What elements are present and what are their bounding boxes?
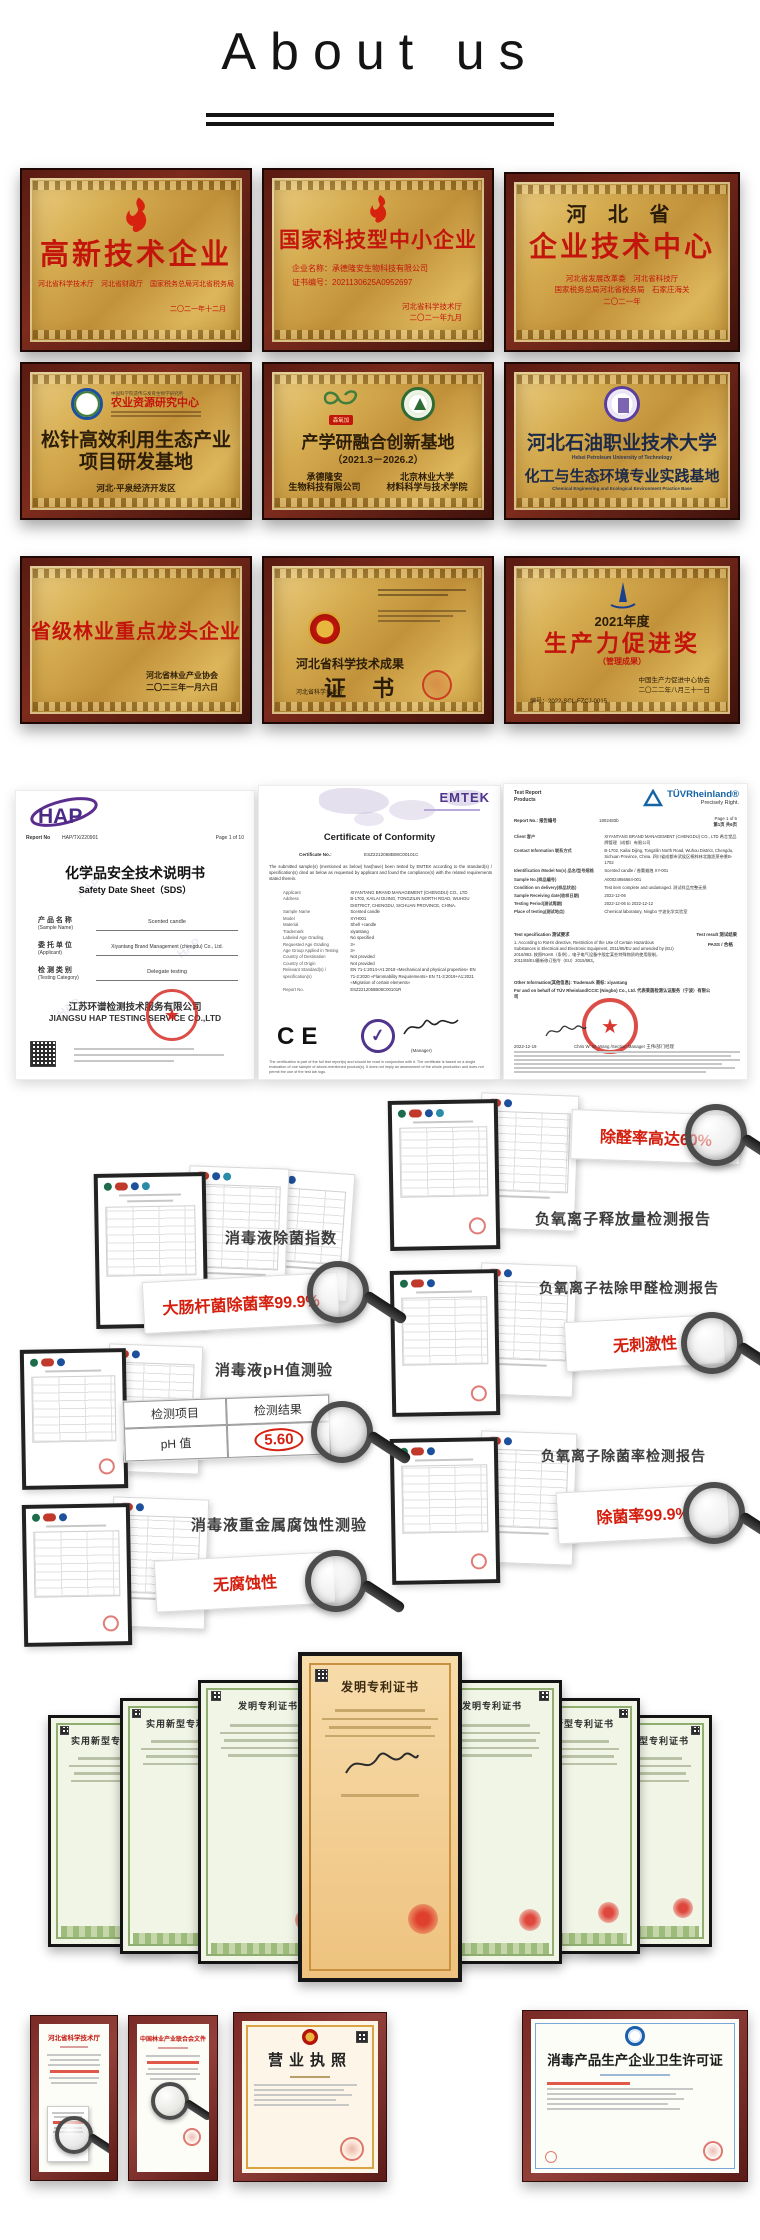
plaque-gold-plate: 河 北 省 企业技术中心 河北省发展改革委 河北省科技厅 国家税务总局河北省税务… [514, 182, 730, 342]
test-report-doc [22, 1503, 132, 1647]
coc-fields: ApplicantXIYANTANG BRAND MANAGEMENT (CHE… [273, 890, 491, 993]
field-label-en: (Sample Name) [38, 925, 96, 931]
cert-title: 河北省科学技术厅 [39, 2032, 109, 2042]
torch-icon [121, 196, 151, 239]
field-label-cn: 检 测 类 别 [38, 965, 96, 975]
table-cell: pH 值 [124, 1425, 228, 1462]
red-seal [519, 1909, 541, 1931]
report-item-ion-sterilization: 负氧离子除菌率检测报告 除菌率99.9% [385, 1430, 753, 1595]
accreditation-logos [32, 1512, 120, 1522]
report-label: 消毒液除菌指数 [225, 1227, 337, 1248]
cert-paper: 中国林业产业联合会文件 [137, 2024, 209, 2172]
plaque-issuer: 河北省科学技术厅 [272, 301, 462, 312]
cert-paper: 营业执照 [242, 2021, 378, 2173]
report-no-value: HAP/TX/220901 [62, 835, 98, 841]
report-item-formaldehyde-removal: 负氧离子祛除甲醛检测报告 无刺激性 [385, 1262, 753, 1427]
coc-title: Certificate of Conformity [259, 832, 500, 843]
emtek-logo: EMTEK [440, 790, 491, 805]
sds-title-cn: 化学品安全技术说明书 [16, 863, 254, 883]
qr-code [356, 2031, 368, 2043]
field-value: Test item complete and undamaged. 测试样品完整… [604, 885, 740, 891]
partner-left-2: 生物科技有限公司 [288, 482, 360, 492]
plaque-issuers-2: 国家税务总局河北省税务局 石家庄海关 [514, 284, 730, 295]
field-key: Place of testing(测试地点) [514, 909, 604, 915]
field-value: Scented candle [96, 915, 238, 931]
field-value: 2022-12-06 [604, 893, 740, 899]
plaque-number: 编号：2022-SCL-FZCJ-0015 [530, 698, 730, 707]
report-no-value: 1802483b [599, 818, 619, 823]
university-emblem [401, 387, 435, 421]
red-seal [103, 1615, 119, 1631]
plaque-gold-plate: 河北石油职业技术大学 Hebei Petroleum University of… [514, 372, 730, 510]
plaque-title-en: Hebei Petroleum University of Technology [514, 455, 730, 463]
plaque-gold-plate: 森氧加 产学研融合创新基地 （2021.3－2026.2） 承德隆安 生物科技有… [272, 372, 484, 510]
plaque-gold-plate: 2021年度 生产力促进奖 （管理成果） 中国生产力促进中心协会 二〇二二年八月… [514, 566, 730, 714]
magnifier-icon [681, 1312, 743, 1374]
report-item-ph-test: 消毒液pH值测验 检测项目 检测结果 pH 值 5.60 [15, 1345, 383, 1500]
health-emblem-icon [625, 2026, 645, 2046]
torch-icon [366, 194, 390, 229]
report-label: 消毒液pH值测验 [215, 1359, 333, 1380]
coc-footer: The certification is part of the full te… [269, 1060, 492, 1075]
plaque-title: 河北石油职业技术大学 [514, 433, 730, 455]
zoom-result-text: 大肠杆菌除菌率99.9% [162, 1287, 320, 1319]
red-seal [99, 1458, 115, 1474]
highlighted-text [147, 2061, 199, 2064]
accreditation-logos [120, 1503, 202, 1514]
about-us-page: About us 高新技术企业 河北省科学技术厅 河北省财政厅 国家税务总局河北… [0, 0, 760, 2240]
doc-type-1: Test Report [514, 790, 541, 796]
red-seal [471, 1553, 487, 1569]
sds-fields: 产 品 名 称 (Sample Name) Scented candle 委 托… [38, 915, 238, 981]
field-key: Report No. [283, 987, 350, 993]
field-value: ESZ2212058B08C00101R [350, 987, 481, 993]
plaque-title-1: 松针高效利用生态产业 [30, 430, 242, 452]
red-seal [469, 1217, 486, 1234]
magnifier-icon [307, 1261, 369, 1323]
plaque-title: 国家科技型中小企业 [272, 229, 484, 253]
field-value: Xiyantang Brand Management (chengdu) Co.… [96, 940, 238, 956]
plaque-date: 二〇二三年一月六日 [30, 682, 218, 694]
plaque-title: 省级林业重点龙头企业 [30, 621, 242, 644]
text-line [111, 411, 201, 413]
plaque-title: 企业技术中心 [514, 231, 730, 263]
red-seal [422, 670, 452, 700]
plaque-gold-plate: 中国科学院遗传与发育生物学研究所 农业资源研究中心 松针高效利用生态产业 项目研… [30, 372, 242, 510]
zoom-result-text: 无腐蚀性 [212, 1568, 277, 1595]
tree-icon [414, 398, 426, 410]
accreditation-logos [104, 1181, 196, 1191]
doc-type-2: Products [514, 797, 536, 803]
zoom-result-text: 除菌率99.9% [596, 1500, 691, 1529]
tuv-fields: Client 客户XIYANTANG BRAND MANAGEMENT (CHE… [514, 834, 740, 917]
plaque-university-practice-base: 河北石油职业技术大学 Hebei Petroleum University of… [504, 362, 740, 520]
patent-certificates-group: 实用新型专利证书 实用新型专利证书 发明专利证书 发明专利证书 [0, 1650, 760, 1985]
tuv-triangle-icon [643, 789, 663, 807]
report-label: 负氧离子释放量检测报告 [535, 1208, 711, 1229]
accreditation-logos [196, 1172, 282, 1183]
field-value: A00024956664-001 [604, 877, 740, 883]
report-no-label: Report No [26, 835, 50, 841]
svg-text:HAP: HAP [38, 805, 82, 828]
plaque-gold-plate: 省级林业重点龙头企业 河北省林业产业协会 二〇二三年一月六日 [30, 566, 242, 714]
red-star-seal [146, 989, 198, 1041]
framed-cert-forestry-association-document: 中国林业产业联合会文件 [128, 2015, 218, 2181]
plaque-title: 生产力促进奖 [514, 630, 730, 656]
manager-signature [401, 1014, 461, 1045]
patent-certificate-invention-center: 发明专利证书 [298, 1652, 462, 1982]
sds-certificate: HAP HAP HAP HAP Report No HAP/TX/220901 … [15, 790, 255, 1080]
framed-cert-hygiene-license: 消毒产品生产企业卫生许可证 [522, 2010, 748, 2182]
coc-intro: The submitted sample(s) (mentioned as be… [269, 864, 492, 882]
plaque-date: 二〇二一年十二月 [30, 305, 226, 316]
plaque-category: （管理成果） [514, 656, 730, 668]
cert-paper: 河北省科学技术厅 [39, 2024, 109, 2172]
magnifier-icon [683, 1482, 745, 1544]
accreditation-logos [488, 1099, 572, 1110]
qr-code [30, 1041, 56, 1067]
field-key: Address [283, 896, 350, 909]
magnifier-icon [151, 2082, 189, 2120]
plaque-province: 河 北 省 [514, 204, 730, 227]
partner-right-1: 北京林业大学 [387, 472, 468, 482]
field-value: B-1702, Kailai Dijing, Tongzilin North R… [604, 848, 740, 866]
red-seal [703, 2141, 723, 2161]
hap-logo: HAP [26, 797, 98, 836]
ce-mark: CE [277, 1023, 324, 1051]
ph-value: 5.60 [254, 1427, 304, 1452]
red-seal [183, 2128, 201, 2146]
org-name: 农业资源研究中心 [111, 397, 201, 410]
report-no-label: Report No.: 报告编号 [514, 818, 557, 824]
plaque-gold-plate: 高新技术企业 河北省科学技术厅 河北省财政厅 国家税务总局河北省税务局 二〇二一… [30, 178, 242, 342]
text-line [74, 1060, 174, 1062]
field-key: Identification /Model No(s) 品名/型号规格 [514, 868, 604, 874]
field-value: B-1702, KAILAI DIJING, TONGZILIN NORTH R… [350, 896, 481, 909]
tuv-footer-lines [514, 1049, 740, 1075]
framed-cert-business-license: 营业执照 [233, 2012, 387, 2182]
official-signature [302, 1747, 458, 1786]
zoom-panel: 检测项目 检测结果 pH 值 5.60 [122, 1393, 332, 1462]
national-emblem-icon [310, 614, 340, 644]
achievement-info-lines [378, 586, 466, 625]
cert-no-label: Certificate No.: [299, 852, 332, 857]
plaque-gold-plate: 国家科技型中小企业 企业名称：承德隆安生物科技有限公司 证书编号：2021130… [272, 178, 484, 342]
cert-title: 中国林业产业联合会文件 [137, 2034, 209, 2043]
red-seal [340, 2137, 364, 2161]
red-seal [673, 1898, 693, 1918]
plaque-year: 2021年度 [514, 615, 730, 630]
page-indicator-cn: 第1页 共6页 [713, 822, 737, 828]
text-line [74, 1054, 224, 1056]
senyangjia-badge: 森氧加 [329, 415, 354, 425]
inspector-signature [544, 1022, 588, 1045]
national-emblem-icon [302, 2029, 318, 2045]
magnifier-icon [685, 1104, 747, 1166]
table-header: 检测项目 [123, 1398, 227, 1429]
field-value: 2022-12-06 to 2022-12-12 [604, 901, 740, 907]
plaque-sub-en: Chemical Engineering and Ecological Envi… [514, 486, 730, 493]
text-line [111, 415, 201, 417]
petroleum-university-emblem [604, 386, 640, 422]
tuv-certificate: Test Report Products TÜVRheinland® Preci… [503, 783, 748, 1080]
title-underline [206, 113, 554, 126]
spec-text: 1. According to RoHS directive, Restrict… [514, 940, 674, 964]
report-label: 负氧离子除菌率检测报告 [541, 1446, 706, 1466]
field-label-en: (Applicant) [38, 950, 96, 956]
emtek-seal: ✓ [359, 1017, 397, 1055]
text-line [74, 1048, 194, 1050]
research-center-emblem [71, 388, 103, 420]
field-key: Condition on delivery(样品状态) [514, 885, 604, 891]
plaque-industry-university-base: 森氧加 产学研融合创新基地 （2021.3－2026.2） 承德隆安 生物科技有… [262, 362, 494, 520]
plaque-sub: 化工与生态环境专业实践基地 [514, 468, 730, 485]
plaque-high-tech-enterprise: 高新技术企业 河北省科学技术厅 河北省财政厅 国家税务总局河北省税务局 二〇二一… [20, 168, 252, 352]
page-indicator: Page 1 of 10 [216, 835, 244, 841]
ph-result-table: 检测项目 检测结果 pH 值 5.60 [123, 1394, 331, 1461]
partner-left-1: 承德隆安 [288, 472, 360, 482]
plaque-date: 二〇二二年八月三十一日 [514, 686, 710, 696]
page-title: About us [0, 22, 760, 82]
tuv-slogan: Precisely Right. [667, 800, 739, 806]
plaque-date: 二〇二一年九月 [272, 312, 462, 323]
report-label: 负氧离子祛除甲醛检测报告 [539, 1278, 719, 1298]
plaque-gold-plate: 河北省科学技术成果 证 书 河北省科学技术厅 [272, 566, 484, 714]
plaque-enterprise-tech-center: 河 北 省 企业技术中心 河北省发展改革委 河北省科技厅 国家税务总局河北省税务… [504, 172, 740, 352]
signature-role: (Manager) [411, 1048, 432, 1053]
report-item-ion-release: 负氧离子释放量检测报告 除醛率高达60% [385, 1090, 753, 1260]
result-label: Test result 测试结果 [696, 932, 737, 938]
magnifier-icon [305, 1550, 367, 1612]
plaque-cert-no: 证书编号：2021130625A0952697 [292, 277, 484, 289]
report-item-heavy-metal-corrosion: 消毒液重金属腐蚀性测验 无腐蚀性 [15, 1498, 383, 1653]
plaque-title: 河北省科学技术成果 [296, 658, 404, 672]
patent-title: 发明专利证书 [302, 1678, 458, 1695]
plaque-science-achievement-cert: 河北省科学技术成果 证 书 河北省科学技术厅 [262, 556, 494, 724]
plaque-issuer: 河北省林业产业协会 [30, 670, 218, 682]
result-value: PASS / 合格 [708, 942, 733, 948]
plaque-date: 二〇二一年 [514, 296, 730, 307]
accreditation-logos [30, 1357, 116, 1366]
plaque-issuer: 河北省科学技术厅 [296, 689, 344, 698]
sail-logo-icon [605, 580, 639, 615]
magnifier-icon [311, 1401, 373, 1463]
plaque-company: 企业名称：承德隆安生物科技有限公司 [292, 263, 484, 275]
other-info: Other Information(其他信息): Trademark 商标: x… [514, 980, 627, 986]
red-seal [408, 1904, 438, 1934]
field-value: XIYANTANG BRAND MANAGEMENT (CHENGDU) CO.… [604, 834, 740, 846]
red-seal-small [545, 2151, 557, 2163]
field-key: Relevant Standard(s) / specification(s) [283, 967, 350, 986]
accreditation-logos [116, 1350, 196, 1361]
cert-no-value: ESZ2212058B08C00101C [364, 852, 418, 857]
field-key: Testing Period(测试周期) [514, 901, 604, 907]
plaque-issuer: 中国生产力促进中心协会 [514, 676, 710, 686]
field-label-cn: 委 托 单 位 [38, 940, 96, 950]
plaque-issuers-1: 河北省发展改革委 河北省科技厅 [514, 273, 730, 284]
sds-title-en: Safety Date Sheet（SDS） [16, 883, 254, 896]
lab-name-en: JIANGSU HAP TESTING SERVICE CO.,LTD [16, 1013, 254, 1023]
accreditation-logos [398, 1108, 488, 1118]
plaque-forestry-leading-enterprise: 省级林业重点龙头企业 河北省林业产业协会 二〇二三年一月六日 [20, 556, 252, 724]
test-report-doc [20, 1348, 128, 1490]
red-seal [471, 1385, 487, 1401]
plaque-period: （2021.3－2026.2） [272, 455, 484, 467]
plaque-pine-needle-rd-base: 中国科学院遗传与发育生物学研究所 农业资源研究中心 松针高效利用生态产业 项目研… [20, 362, 252, 520]
emblem-glyph [618, 398, 629, 413]
plaque-issuers: 河北省科学技术厅 河北省财政厅 国家税务总局河北省税务局 [30, 280, 242, 291]
accreditation-logos [400, 1446, 488, 1456]
plaque-title: 高新技术企业 [30, 239, 242, 272]
report-item-sterilization-index: 消毒液除菌指数 大肠杆菌除菌率99.9% [15, 1165, 383, 1345]
cert-paper: 消毒产品生产企业卫生许可证 [531, 2019, 739, 2173]
text-line [424, 809, 480, 811]
zoom-result-text: 无刺激性 [612, 1329, 677, 1356]
field-key: Sample Receiving date(收样日期) [514, 893, 604, 899]
framed-cert-science-dept-document: 河北省科学技术厅 [30, 2015, 118, 2181]
spec-label: Test specification 测试要求 [514, 932, 570, 938]
field-key: Client 客户 [514, 834, 604, 846]
coc-certificate: EMTEK Certificate of Conformity Certific… [258, 785, 501, 1080]
plaque-productivity-award: 2021年度 生产力促进奖 （管理成果） 中国生产力促进中心协会 二〇二二年八月… [504, 556, 740, 724]
accreditation-logos [400, 1278, 488, 1288]
plaque-title-2: 项目研发基地 [30, 452, 242, 474]
plaque-national-tech-sme: 国家科技型中小企业 企业名称：承德隆安生物科技有限公司 证书编号：2021130… [262, 168, 494, 352]
field-value: EN 71-1:2014+A1:2018 «Mechanical and phy… [350, 967, 481, 986]
partner-right-2: 材料科学与技术学院 [387, 482, 468, 492]
field-label-cn: 产 品 名 称 [38, 915, 96, 925]
page-indicator: Page 1 of 6 [715, 816, 737, 821]
senyangjia-logo-icon [321, 387, 361, 414]
field-value: Delegate testing [96, 965, 238, 981]
field-label-en: (Testing Category) [38, 975, 96, 981]
test-report-doc [390, 1269, 501, 1417]
red-seal [598, 1902, 619, 1923]
plaque-sub: 河北·平泉经济开发区 [30, 482, 242, 495]
field-value: Chemical laboratory, Ningbo 宁波化学实验室 [604, 909, 740, 915]
field-key: Contact Information 联系方式 [514, 848, 604, 866]
highlighted-text [50, 2070, 99, 2073]
plaque-title: 产学研融合创新基地 [272, 433, 484, 453]
lab-name-cn: 江苏环谱检测技术服务有限公司 [16, 999, 254, 1013]
report-label: 消毒液重金属腐蚀性测验 [191, 1514, 367, 1535]
tuv-logo: TÜVRheinland® Precisely Right. [643, 789, 739, 807]
tuv-brand: TÜVRheinland® [667, 789, 739, 800]
magnifier-icon [55, 2116, 93, 2154]
field-value: Scented candle / 香薰蜡烛 XY-001 [604, 868, 740, 874]
field-key: Sample No.(样品编号) [514, 877, 604, 883]
test-report-doc [388, 1099, 501, 1251]
